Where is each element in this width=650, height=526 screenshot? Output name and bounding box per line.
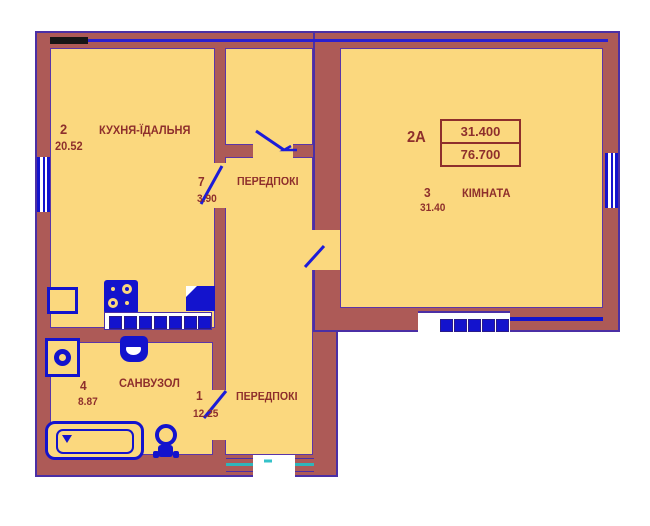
area-table: 31.400 76.700	[440, 119, 521, 167]
kitchen-number-label: 2	[60, 122, 67, 136]
kitchen-area-label: 20.52	[55, 140, 83, 152]
living-name-label: КІМНАТА	[462, 187, 510, 199]
hall7-number-label: 7	[198, 175, 205, 188]
unit-label: 2А	[407, 130, 426, 146]
area-table-lower: 76.700	[442, 144, 519, 165]
door-swing-lines	[0, 0, 650, 526]
living-area-label: 31.40	[420, 203, 445, 214]
living-door-swing	[305, 246, 324, 267]
bathroom-name-label: САНВУЗОЛ	[119, 377, 180, 389]
closet-door-swing	[256, 131, 284, 150]
area-table-upper: 31.400	[442, 121, 519, 144]
kitchen-name-label: КУХНЯ-ЇДАЛЬНЯ	[99, 124, 190, 136]
hall7-name-label: ПЕРЕДПОКІ	[237, 177, 312, 189]
living-number-label: 3	[424, 186, 431, 199]
bathroom-number-label: 4	[80, 379, 87, 392]
hall7-area-label: 3.90	[197, 194, 217, 205]
hall1-area-label: 12.25	[193, 409, 218, 420]
closet-door-arrow	[284, 146, 297, 150]
floor-plan: 2 20.52 КУХНЯ-ЇДАЛЬНЯ 7 3.90 ПЕРЕДПОКІ 2…	[0, 0, 650, 526]
hall1-name-label: ПЕРЕДПОКІ	[236, 392, 310, 404]
bathroom-area-label: 8.87	[78, 397, 98, 408]
hall1-number-label: 1	[196, 389, 203, 402]
